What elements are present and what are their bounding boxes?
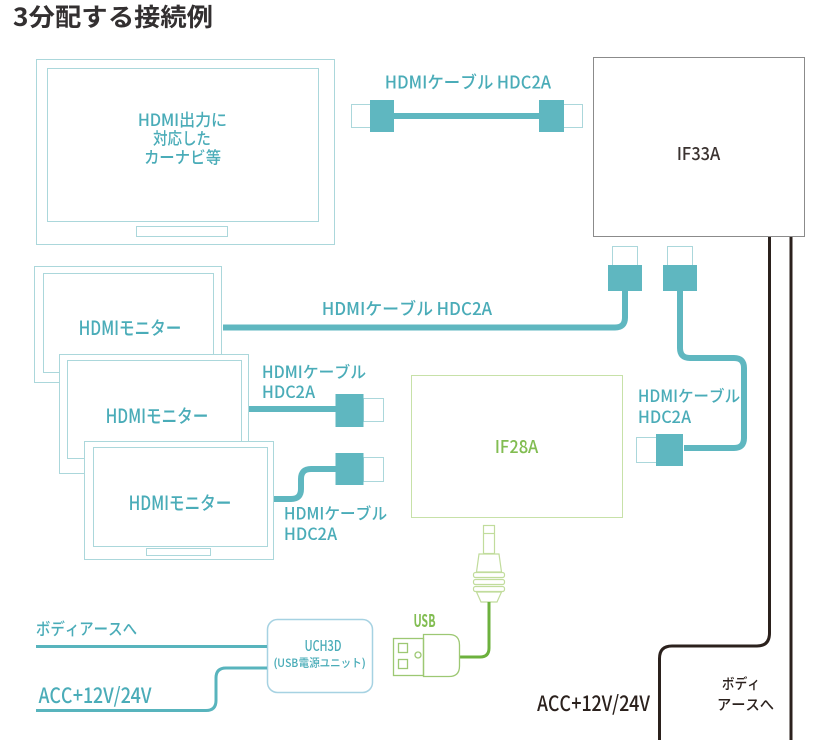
svg-text:カーナビ等: カーナビ等 xyxy=(144,144,221,169)
svg-text:ACC+12V/24V: ACC+12V/24V xyxy=(39,680,152,710)
svg-text:HDC2A: HDC2A xyxy=(262,379,316,403)
svg-text:HDMIモニター: HDMIモニター xyxy=(79,314,182,341)
svg-text:HDMIケーブル HDC2A: HDMIケーブル HDC2A xyxy=(322,296,492,321)
svg-text:HDC2A: HDC2A xyxy=(638,404,692,428)
svg-text:ACC+12V/24V: ACC+12V/24V xyxy=(537,688,650,718)
svg-text:ボディアースへ: ボディアースへ xyxy=(36,615,137,640)
svg-text:HDMIモニター: HDMIモニター xyxy=(129,489,232,516)
svg-text:アースへ: アースへ xyxy=(717,694,774,715)
svg-text:USB: USB xyxy=(414,607,436,632)
svg-text:(USB電源ユニット): (USB電源ユニット) xyxy=(274,655,366,671)
svg-text:IF28A: IF28A xyxy=(495,433,538,458)
svg-text:HDC2A: HDC2A xyxy=(284,521,338,545)
svg-text:HDMIケーブル HDC2A: HDMIケーブル HDC2A xyxy=(385,70,551,95)
svg-text:IF33A: IF33A xyxy=(677,140,720,165)
svg-text:ボディ: ボディ xyxy=(722,673,760,694)
svg-text:UCH3D: UCH3D xyxy=(305,634,342,656)
svg-text:3分配する接続例: 3分配する接続例 xyxy=(13,0,213,34)
svg-text:HDMIモニター: HDMIモニター xyxy=(106,402,209,429)
